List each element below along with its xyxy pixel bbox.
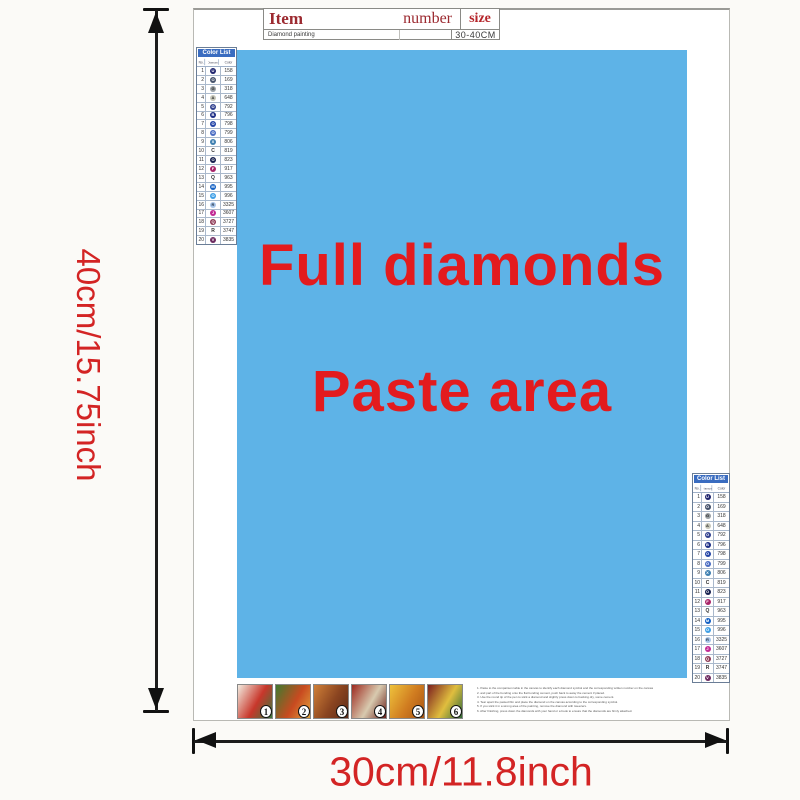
- color-list-rows: 1U1582O1693G3184A6485O7926B7967O7988O799…: [197, 67, 236, 244]
- diamond-symbol-cell: O: [702, 531, 714, 540]
- step-number-badge: 1: [260, 705, 272, 718]
- color-row-number: 16: [197, 201, 206, 209]
- color-row: 6B796: [197, 112, 236, 121]
- diamond-symbol-cell: X: [206, 138, 221, 146]
- color-row-number: 13: [693, 607, 702, 616]
- dmc-color-code: 796: [714, 542, 729, 548]
- color-row-number: 5: [197, 103, 206, 111]
- diamond-symbol-cell: O: [206, 129, 221, 137]
- dmc-color-code: 3835: [221, 237, 236, 243]
- diamond-symbol-cell: G: [702, 512, 714, 521]
- color-row-number: 18: [197, 218, 206, 226]
- color-row: 16R3325: [197, 201, 236, 210]
- color-row: 8O799: [693, 560, 729, 570]
- diamond-symbol-cell: J: [702, 645, 714, 654]
- dmc-color-code: 963: [714, 608, 729, 614]
- diamond-symbol-cell: V: [702, 674, 714, 683]
- color-row-number: 20: [197, 236, 206, 244]
- step-number-badge: 3: [336, 705, 348, 718]
- diamond-color-dot-icon: J: [210, 210, 216, 216]
- dmc-color-code: 3835: [714, 675, 729, 681]
- diamond-color-dot-icon: U: [705, 494, 711, 500]
- color-row: 17J3607: [197, 210, 236, 219]
- color-row-number: 15: [693, 626, 702, 635]
- arrowhead-down-icon: [148, 688, 164, 709]
- arrowhead-up-icon: [148, 12, 164, 33]
- step-number-badge: 5: [412, 705, 424, 718]
- step-number-badge: 6: [450, 705, 462, 718]
- size-column-header: size: [461, 11, 499, 27]
- dmc-color-code: 3747: [714, 665, 729, 671]
- diamond-color-dot-icon: B: [705, 542, 711, 548]
- diamond-color-dot-icon: X: [705, 570, 711, 576]
- diamond-color-dot-icon: B: [210, 112, 216, 118]
- dmc-color-code: 963: [221, 175, 236, 181]
- dmc-color-code: 158: [221, 68, 236, 74]
- paste-area: Full diamonds Paste area: [237, 50, 687, 678]
- diamond-symbol-cell: U: [206, 67, 221, 75]
- diamond-color-dot-icon: O: [705, 561, 711, 567]
- diamond-symbol-cell: O: [702, 626, 714, 635]
- color-row-number: 17: [197, 210, 206, 218]
- color-row: 3G318: [693, 512, 729, 522]
- color-row: 15O996: [693, 626, 729, 636]
- color-row: 20V3835: [693, 674, 729, 683]
- color-row-number: 19: [197, 227, 206, 235]
- step-photo: 6: [427, 684, 463, 719]
- color-row: 11O823: [197, 156, 236, 165]
- color-list-title: Color List: [197, 48, 236, 58]
- diamond-color-dot-icon: Q: [210, 219, 216, 225]
- color-row-number: 10: [693, 579, 702, 588]
- color-list-column-header: No.: [694, 485, 701, 491]
- diamond-symbol-letter: Q: [706, 608, 710, 614]
- color-row: 7O798: [197, 120, 236, 129]
- color-row-number: 8: [197, 129, 206, 137]
- instruction-text-block: 1. Paste to the comparison table in the …: [477, 686, 685, 713]
- item-size-cell: 30-40CM: [452, 30, 499, 40]
- instruction-step-photos: 123456: [237, 684, 463, 719]
- color-row: 3G318: [197, 85, 236, 94]
- color-row-number: 14: [693, 617, 702, 626]
- color-row: 13Q963: [693, 607, 729, 617]
- diamond-symbol-cell: O: [702, 588, 714, 597]
- dmc-color-code: 3607: [221, 210, 236, 216]
- arrow-line: [194, 740, 727, 743]
- diamond-symbol-cell: O: [206, 76, 221, 84]
- instruction-line: 6. After finishing, press down the diamo…: [477, 709, 685, 714]
- color-row: 20V3835: [197, 236, 236, 244]
- color-row: 9X806: [693, 569, 729, 579]
- step-photo: 3: [313, 684, 349, 719]
- color-row: 17J3607: [693, 645, 729, 655]
- step-photo: 2: [275, 684, 311, 719]
- color-row: 15O996: [197, 192, 236, 201]
- diamond-color-dot-icon: O: [705, 504, 711, 510]
- color-row: 5O792: [197, 103, 236, 112]
- color-row-number: 14: [197, 183, 206, 191]
- color-row-number: 4: [693, 522, 702, 531]
- diamond-symbol-cell: O: [206, 192, 221, 200]
- color-row-number: 8: [693, 560, 702, 569]
- color-row-number: 11: [197, 156, 206, 164]
- dmc-color-code: 806: [714, 570, 729, 576]
- color-row-number: 2: [197, 76, 206, 84]
- dmc-color-code: 819: [714, 580, 729, 586]
- width-dimension-label: 30cm/11.8inch: [329, 749, 593, 796]
- dmc-color-code: 158: [714, 494, 729, 500]
- diamond-color-dot-icon: A: [705, 523, 711, 529]
- dmc-color-code: 169: [714, 504, 729, 510]
- color-row-number: 1: [197, 67, 206, 75]
- color-list-title: Color List: [693, 474, 729, 484]
- diamond-symbol-cell: A: [206, 94, 221, 102]
- dmc-color-code: 996: [714, 627, 729, 633]
- dmc-color-code: 3325: [714, 637, 729, 643]
- diamond-symbol-cell: O: [702, 550, 714, 559]
- dmc-color-code: 3727: [221, 219, 236, 225]
- color-row: 8O799: [197, 129, 236, 138]
- dmc-color-code: 318: [714, 513, 729, 519]
- color-row: 18Q3727: [693, 655, 729, 665]
- diamond-color-dot-icon: M: [210, 184, 216, 190]
- diamond-color-dot-icon: G: [705, 513, 711, 519]
- color-row: 14M995: [693, 617, 729, 627]
- diamond-symbol-letter: R: [706, 665, 710, 671]
- diamond-symbol-cell: O: [206, 120, 221, 128]
- dmc-color-code: 648: [714, 523, 729, 529]
- diamond-color-dot-icon: O: [210, 193, 216, 199]
- diamond-symbol-letter: Q: [211, 175, 215, 181]
- dmc-color-code: 995: [221, 184, 236, 190]
- color-row: 1U158: [197, 67, 236, 76]
- diamond-symbol-letter: C: [211, 148, 215, 154]
- color-list-column-header: Color: [223, 60, 235, 64]
- dmc-color-code: 996: [221, 193, 236, 199]
- diamond-symbol-letter: R: [211, 228, 215, 234]
- diamond-symbol-cell: R: [702, 636, 714, 645]
- color-row: 4A648: [693, 522, 729, 532]
- diamond-symbol-cell: Q: [206, 174, 221, 182]
- step-photo: 5: [389, 684, 425, 719]
- step-number-badge: 2: [298, 705, 310, 718]
- diamond-symbol-cell: Q: [702, 607, 714, 616]
- color-row-number: 16: [693, 636, 702, 645]
- diamond-color-dot-icon: F: [210, 166, 216, 172]
- diamond-symbol-cell: C: [206, 147, 221, 155]
- diamond-symbol-cell: F: [206, 165, 221, 173]
- dmc-color-code: 792: [221, 104, 236, 110]
- diamond-color-dot-icon: O: [705, 532, 711, 538]
- color-row: 2O169: [197, 76, 236, 85]
- diamond-symbol-cell: F: [702, 598, 714, 607]
- diamond-symbol-cell: U: [702, 493, 714, 502]
- diamond-symbol-cell: B: [206, 112, 221, 120]
- color-row: 11O823: [693, 588, 729, 598]
- color-row-number: 12: [693, 598, 702, 607]
- diamond-color-dot-icon: R: [705, 637, 711, 643]
- dmc-color-code: 648: [221, 95, 236, 101]
- diamond-color-dot-icon: R: [210, 202, 216, 208]
- color-row: 18Q3727: [197, 218, 236, 227]
- color-row-number: 17: [693, 645, 702, 654]
- color-list-column-headers: No.DiamondColor: [693, 484, 729, 493]
- diamond-symbol-cell: M: [702, 617, 714, 626]
- diamond-color-dot-icon: V: [705, 675, 711, 681]
- color-row: 4A648: [197, 94, 236, 103]
- color-row-number: 4: [197, 94, 206, 102]
- color-row: 12F917: [693, 598, 729, 608]
- color-row-number: 12: [197, 165, 206, 173]
- dmc-color-code: 3325: [221, 202, 236, 208]
- diamond-color-dot-icon: O: [210, 77, 216, 83]
- number-column-header: number: [403, 10, 452, 28]
- diamond-symbol-cell: Q: [206, 218, 221, 226]
- color-list-column-header: Color: [716, 486, 728, 490]
- color-row: 14M995: [197, 183, 236, 192]
- color-list-column-header: Diamond: [208, 59, 219, 65]
- dmc-color-code: 796: [221, 112, 236, 118]
- dmc-color-code: 798: [714, 551, 729, 557]
- color-row: 10C819: [197, 147, 236, 156]
- dmc-color-code: 917: [714, 599, 729, 605]
- dmc-color-code: 798: [221, 121, 236, 127]
- color-row-number: 20: [693, 674, 702, 683]
- diamond-symbol-cell: O: [206, 156, 221, 164]
- color-row-number: 9: [693, 569, 702, 578]
- color-row: 2O169: [693, 503, 729, 513]
- diamond-symbol-cell: M: [206, 183, 221, 191]
- color-list-rows: 1U1582O1693G3184A6485O7926B7967O7988O799…: [693, 493, 729, 682]
- dmc-color-code: 169: [221, 77, 236, 83]
- color-row-number: 10: [197, 147, 206, 155]
- dmc-color-code: 3747: [221, 228, 236, 234]
- diamond-symbol-cell: A: [702, 522, 714, 531]
- step-photo: 4: [351, 684, 387, 719]
- dmc-color-code: 799: [221, 130, 236, 136]
- height-dimension-arrow: [141, 8, 171, 713]
- color-row: 19R3747: [197, 227, 236, 236]
- diamond-color-dot-icon: O: [210, 157, 216, 163]
- color-row: 6B796: [693, 541, 729, 551]
- color-row: 10C819: [693, 579, 729, 589]
- color-row-number: 5: [693, 531, 702, 540]
- diamond-symbol-cell: C: [702, 579, 714, 588]
- dmc-color-code: 823: [714, 589, 729, 595]
- color-row-number: 3: [197, 85, 206, 93]
- dmc-color-code: 799: [714, 561, 729, 567]
- dmc-color-code: 792: [714, 532, 729, 538]
- color-list-column-headers: No.DiamondColor: [197, 58, 236, 67]
- diamond-color-dot-icon: X: [210, 139, 216, 145]
- item-table-header-left: Item number: [264, 9, 461, 29]
- diamond-symbol-cell: J: [206, 210, 221, 218]
- diamond-symbol-cell: X: [702, 569, 714, 578]
- diamond-symbol-cell: R: [702, 664, 714, 673]
- color-row-number: 7: [197, 120, 206, 128]
- item-table-body-row: Diamond painting 30-40CM: [264, 30, 499, 40]
- arrow-line: [155, 10, 158, 711]
- dmc-color-code: 3607: [714, 646, 729, 652]
- dmc-color-code: 3727: [714, 656, 729, 662]
- dmc-color-code: 819: [221, 148, 236, 154]
- diamond-color-dot-icon: M: [705, 618, 711, 624]
- color-row-number: 7: [693, 550, 702, 559]
- dmc-color-code: 806: [221, 139, 236, 145]
- diamond-color-dot-icon: O: [210, 104, 216, 110]
- item-size-table: Item number size Diamond painting 30-40C…: [263, 8, 500, 40]
- paste-area-title-line2: Paste area: [237, 358, 687, 425]
- color-row: 13Q963: [197, 174, 236, 183]
- color-row: 5O792: [693, 531, 729, 541]
- item-column-header: Item: [269, 9, 303, 29]
- paste-area-title-line1: Full diamonds: [237, 232, 687, 299]
- color-row: 16R3325: [693, 636, 729, 646]
- color-row-number: 11: [693, 588, 702, 597]
- diamond-symbol-cell: G: [206, 85, 221, 93]
- diamond-color-dot-icon: O: [210, 121, 216, 127]
- diamond-color-dot-icon: F: [705, 599, 711, 605]
- color-row-number: 1: [693, 493, 702, 502]
- diamond-color-dot-icon: Q: [705, 656, 711, 662]
- color-list-table-left: Color ListNo.DiamondColor1U1582O1693G318…: [196, 47, 237, 245]
- color-row: 1U158: [693, 493, 729, 503]
- diamond-symbol-cell: O: [206, 103, 221, 111]
- diamond-color-dot-icon: O: [705, 589, 711, 595]
- color-row-number: 15: [197, 192, 206, 200]
- diamond-symbol-cell: B: [702, 541, 714, 550]
- color-row-number: 18: [693, 655, 702, 664]
- item-name-cell: Diamond painting: [264, 30, 400, 40]
- dmc-color-code: 318: [221, 86, 236, 92]
- dmc-color-code: 995: [714, 618, 729, 624]
- color-list-column-header: No.: [198, 59, 205, 65]
- color-row-number: 3: [693, 512, 702, 521]
- item-number-cell: [400, 30, 452, 40]
- color-list-column-header: Diamond: [704, 485, 712, 491]
- diamond-symbol-letter: C: [706, 580, 710, 586]
- color-row-number: 2: [693, 503, 702, 512]
- diamond-symbol-cell: Q: [702, 655, 714, 664]
- item-table-header-row: Item number size: [264, 9, 499, 30]
- diamond-color-dot-icon: A: [210, 95, 216, 101]
- product-diagram: Item number size Diamond painting 30-40C…: [0, 0, 800, 800]
- diamond-color-dot-icon: O: [705, 627, 711, 633]
- step-number-badge: 4: [374, 705, 386, 718]
- color-row-number: 6: [197, 112, 206, 120]
- arrowhead-right-icon: [705, 732, 725, 748]
- dmc-color-code: 917: [221, 166, 236, 172]
- diamond-color-dot-icon: V: [210, 237, 216, 243]
- color-row: 12F917: [197, 165, 236, 174]
- color-row-number: 19: [693, 664, 702, 673]
- diamond-symbol-cell: O: [702, 503, 714, 512]
- color-row: 19R3747: [693, 664, 729, 674]
- diamond-color-dot-icon: G: [210, 86, 216, 92]
- height-dimension-label: 40cm/15.75inch: [69, 249, 107, 482]
- diamond-symbol-cell: R: [206, 227, 221, 235]
- color-row-number: 9: [197, 138, 206, 146]
- diamond-symbol-cell: V: [206, 236, 221, 244]
- diamond-symbol-cell: O: [702, 560, 714, 569]
- diamond-color-dot-icon: O: [210, 130, 216, 136]
- color-row-number: 6: [693, 541, 702, 550]
- step-photo: 1: [237, 684, 273, 719]
- color-row: 7O798: [693, 550, 729, 560]
- color-list-table-right: Color ListNo.DiamondColor1U1582O1693G318…: [692, 473, 730, 683]
- diamond-symbol-cell: R: [206, 201, 221, 209]
- diamond-color-dot-icon: U: [210, 68, 216, 74]
- color-row-number: 13: [197, 174, 206, 182]
- diamond-color-dot-icon: J: [705, 646, 711, 652]
- dmc-color-code: 823: [221, 157, 236, 163]
- diamond-color-dot-icon: O: [705, 551, 711, 557]
- color-row: 9X806: [197, 138, 236, 147]
- arrowhead-left-icon: [196, 732, 216, 748]
